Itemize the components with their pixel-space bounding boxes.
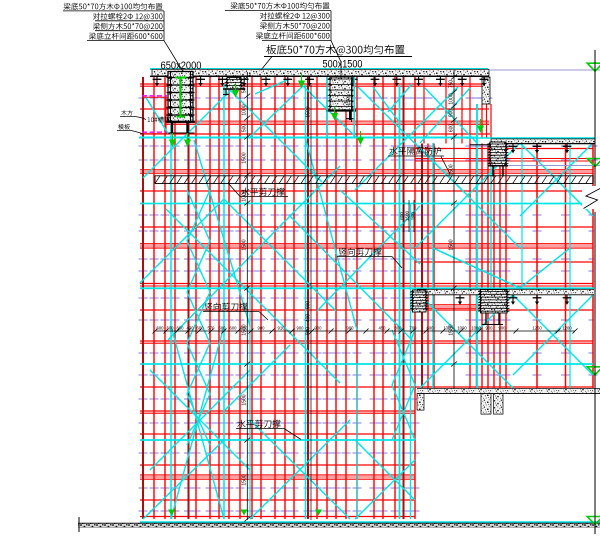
- svg-text:900: 900: [305, 301, 311, 310]
- svg-text:450: 450: [379, 326, 387, 331]
- svg-text:600: 600: [399, 212, 404, 220]
- svg-text:500: 500: [242, 85, 248, 94]
- svg-text:650x2000: 650x2000: [161, 60, 202, 72]
- svg-text:1500: 1500: [242, 152, 248, 163]
- svg-text:1500: 1500: [448, 239, 454, 250]
- svg-text:600: 600: [167, 326, 175, 331]
- svg-text:900: 900: [315, 326, 323, 331]
- svg-text:800: 800: [395, 326, 403, 331]
- svg-text:600: 600: [241, 326, 249, 331]
- svg-text:500: 500: [242, 124, 248, 133]
- svg-text:700: 700: [410, 326, 418, 331]
- svg-text:1000: 1000: [242, 104, 248, 115]
- svg-text:400: 400: [305, 314, 311, 323]
- svg-text:600: 600: [177, 326, 185, 331]
- svg-text:1500: 1500: [242, 394, 248, 405]
- svg-text:900: 900: [448, 109, 454, 118]
- svg-text:600: 600: [197, 326, 205, 331]
- svg-text:1000: 1000: [471, 326, 481, 331]
- svg-text:1250: 1250: [532, 326, 542, 331]
- svg-text:910: 910: [278, 326, 286, 331]
- svg-text:900: 900: [499, 326, 507, 331]
- svg-text:500x1500: 500x1500: [323, 59, 363, 71]
- svg-text:1500: 1500: [242, 474, 248, 485]
- svg-text:600: 600: [427, 326, 435, 331]
- svg-text:1000: 1000: [448, 93, 454, 104]
- svg-text:900: 900: [486, 326, 494, 331]
- svg-text:570: 570: [208, 326, 216, 331]
- svg-text:900: 900: [297, 326, 305, 331]
- svg-text:750: 750: [448, 80, 454, 89]
- svg-text:900: 900: [410, 212, 415, 220]
- svg-text:600: 600: [230, 326, 238, 331]
- svg-text:1500: 1500: [405, 210, 410, 221]
- svg-text:600: 600: [448, 124, 454, 133]
- svg-text:600: 600: [157, 326, 165, 331]
- svg-text:1200: 1200: [562, 326, 572, 331]
- svg-text:900: 900: [258, 326, 266, 331]
- svg-text:1350: 1350: [443, 326, 453, 331]
- svg-text:900: 900: [347, 326, 355, 331]
- svg-text:1500: 1500: [448, 164, 454, 175]
- svg-text:400: 400: [187, 326, 195, 331]
- svg-text:1500: 1500: [346, 94, 352, 105]
- svg-text:600: 600: [219, 326, 227, 331]
- svg-text:1500: 1500: [242, 239, 248, 250]
- svg-text:1000: 1000: [457, 326, 467, 331]
- svg-text:1500: 1500: [305, 106, 311, 117]
